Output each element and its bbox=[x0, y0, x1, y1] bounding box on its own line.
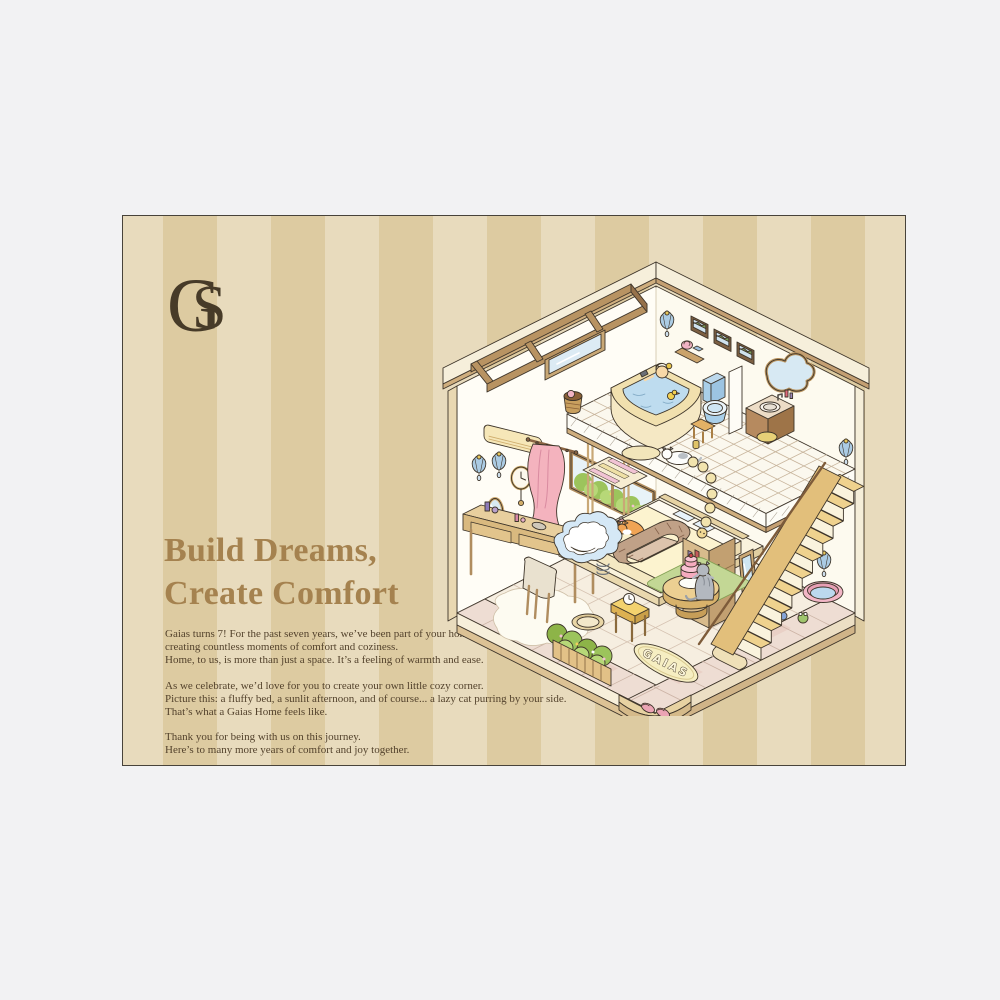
woven-tray bbox=[572, 614, 604, 630]
logo-monogram: G S bbox=[167, 268, 247, 352]
toilet bbox=[703, 373, 727, 424]
poster-card: G S Build Dreams, Create Comfort Gaias t… bbox=[122, 215, 906, 766]
wash-basin bbox=[757, 432, 777, 442]
poster-page: G S Build Dreams, Create Comfort Gaias t… bbox=[0, 0, 1000, 1000]
headline-line-1: Build Dreams, bbox=[164, 530, 399, 573]
wicker-basket bbox=[564, 390, 582, 413]
tub-step bbox=[622, 446, 660, 460]
frog-toy bbox=[798, 612, 808, 623]
exterior-wall-right bbox=[855, 386, 864, 621]
partition bbox=[729, 366, 742, 434]
exterior-wall-left bbox=[448, 386, 457, 621]
isometric-house-illustration: GAIAS bbox=[441, 256, 871, 716]
pet-bed bbox=[803, 582, 843, 603]
logo-letter-s: S bbox=[192, 277, 226, 339]
headline-line-2: Create Comfort bbox=[164, 573, 399, 616]
paragraph-3: Thank you for being with us on this jour… bbox=[165, 731, 567, 757]
headline: Build Dreams, Create Comfort bbox=[164, 530, 399, 616]
jar bbox=[693, 440, 699, 448]
